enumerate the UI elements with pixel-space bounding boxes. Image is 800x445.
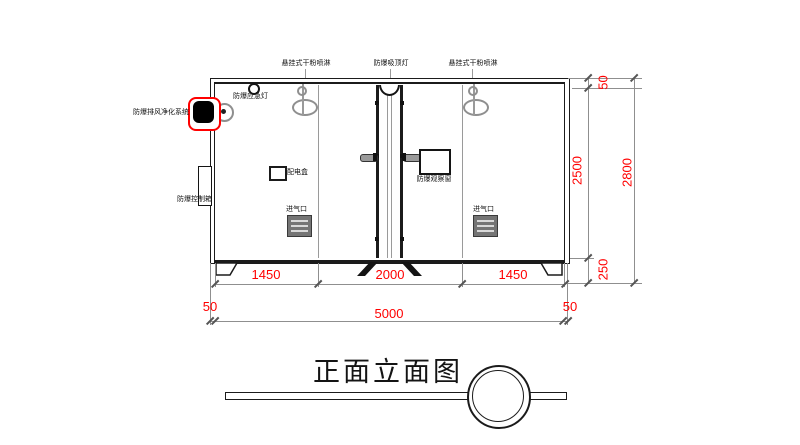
dim-right-base: 250 (597, 255, 610, 285)
label-observation-window: 防爆观察窗 (416, 176, 452, 184)
dim-line-right-segments (588, 78, 589, 283)
elevation-drawing-canvas: 悬挂式干粉喷淋 防爆吸顶灯 悬挂式干粉喷淋 防爆应急灯 防爆排风净化系统 防爆控… (0, 0, 800, 445)
dim-right-body: 2500 (571, 141, 584, 201)
dim-line-bottom-segments (215, 284, 565, 285)
label-air-inlet-right: 进气口 (473, 206, 494, 214)
dim-line-bottom-total (210, 321, 568, 322)
ext-line (210, 263, 211, 325)
ext-line (570, 258, 594, 259)
dim-right-roof: 50 (597, 68, 610, 98)
drawing-title: 正面立面图 (313, 350, 463, 389)
dim-right-total: 2800 (621, 143, 634, 203)
leader-sprinkler-right (472, 69, 473, 78)
dim-bottom-wall-left: 50 (196, 300, 224, 313)
dim-bottom-total: 5000 (359, 307, 419, 320)
label-ceiling-lamp: 防爆吸顶灯 (362, 60, 420, 68)
label-control-box: 防爆控制箱 (177, 196, 212, 204)
dim-bottom-seg-right: 1450 (483, 268, 543, 281)
title-ornament-circle-inner (472, 370, 524, 422)
leader-ceiling-lamp (390, 69, 391, 78)
label-emergency-lamp: 防爆应急灯 (233, 93, 268, 101)
dim-bottom-seg-mid: 2000 (360, 268, 420, 281)
label-sprinkler-right: 悬挂式干粉喷淋 (437, 60, 509, 68)
dim-bottom-seg-left: 1450 (236, 268, 296, 281)
ext-line (567, 263, 568, 325)
leader-sprinkler-left (305, 69, 306, 78)
dim-bottom-wall-right: 50 (556, 300, 584, 313)
label-sprinkler-left: 悬挂式干粉喷淋 (270, 60, 342, 68)
label-air-inlet-left: 进气口 (286, 206, 307, 214)
label-purge-system: 防爆排风净化系统 (131, 109, 189, 117)
label-power-box: 配电盒 (287, 169, 308, 177)
